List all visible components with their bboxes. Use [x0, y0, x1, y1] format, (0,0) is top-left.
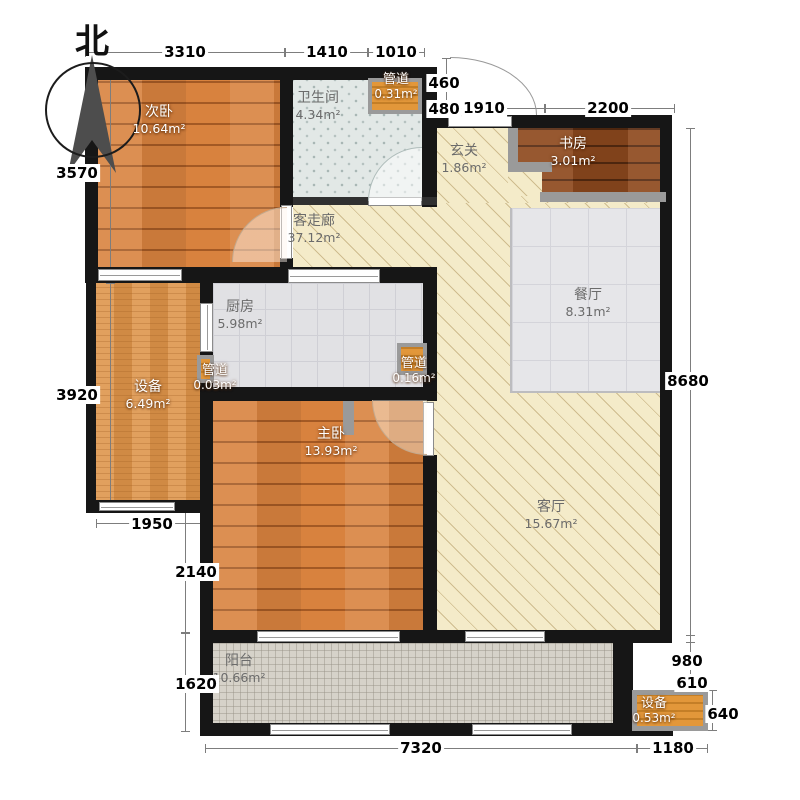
room-label-living: 客厅 15.67m²: [525, 499, 578, 532]
dim-label: 7320: [398, 739, 444, 757]
room-name: 客走廊: [293, 213, 335, 229]
room-label-pipe-top: 管道 0.31m²: [374, 72, 417, 101]
room-area: 1.86m²: [441, 160, 486, 176]
room-name: 设备: [134, 379, 162, 395]
room-area: 0.31m²: [374, 87, 417, 101]
wall-segment: [200, 387, 213, 633]
dim-label: 980: [669, 652, 704, 670]
dim-label: 480: [426, 100, 461, 118]
dim-label: 640: [705, 705, 740, 723]
room-area: 5.98m²: [217, 316, 262, 332]
dim-label: 1410: [304, 43, 350, 61]
room-name: 管道: [202, 363, 228, 378]
study-trim: [540, 192, 666, 202]
dim-label: 2140: [173, 563, 219, 581]
room-label-equipment-br: 设备 0.53m²: [632, 696, 675, 725]
window: [200, 303, 213, 352]
room-name: 次卧: [145, 104, 173, 120]
room-name: 主卧: [317, 426, 345, 442]
room-label-kitchen: 厨房 5.98m²: [217, 299, 262, 332]
dim-label: 2200: [585, 99, 631, 117]
study-trim: [508, 162, 552, 172]
dim-label: 8680: [665, 372, 711, 390]
window: [270, 724, 390, 735]
room-name: 设备: [641, 696, 667, 711]
wall-segment: [200, 283, 213, 303]
room-label-study: 书房 3.01m²: [550, 136, 595, 169]
dim-label: 1910: [461, 99, 507, 117]
room-name: 书房: [559, 136, 587, 152]
dim-label: 3310: [162, 43, 208, 61]
window: [465, 631, 545, 642]
floor-balcony: [212, 643, 613, 723]
north-compass: 北: [30, 6, 150, 166]
window: [99, 502, 175, 511]
room-name: 卫生间: [297, 90, 339, 106]
dim-label: 1950: [129, 515, 175, 533]
room-area: 6.49m²: [125, 396, 170, 412]
floor-entry-notch: [508, 170, 542, 196]
room-label-master-bedroom: 主卧 13.93m²: [305, 426, 358, 459]
floor-plan: 次卧 10.64m² 卫生间 4.34m² 管道 0.31m² 玄关 1.86m…: [0, 0, 800, 800]
room-name: 客厅: [537, 499, 565, 515]
room-label-bathroom: 卫生间 4.34m²: [295, 90, 340, 123]
dim-label: 460: [426, 74, 461, 92]
room-area: 0.03m²: [193, 378, 236, 392]
room-label-corridor: 客走廊 37.12m²: [288, 213, 341, 246]
room-label-entry-hall: 玄关 1.86m²: [441, 143, 486, 176]
compass-circle-icon: [45, 62, 141, 158]
dim-label: 1620: [173, 675, 219, 693]
wall-segment: [280, 67, 293, 207]
room-label-equipment-left: 设备 6.49m²: [125, 379, 170, 412]
dim-line: [110, 283, 111, 508]
room-area: 37.12m²: [288, 230, 341, 246]
room-name: 厨房: [226, 299, 254, 315]
window: [98, 269, 182, 281]
dim-label: 1180: [650, 739, 696, 757]
room-area: 10.64m²: [133, 121, 186, 137]
room-name: 玄关: [450, 143, 478, 159]
room-area: 0.16m²: [392, 371, 435, 385]
room-area: 15.67m²: [525, 516, 578, 532]
room-area: 4.34m²: [295, 107, 340, 123]
wall-segment: [613, 633, 633, 736]
dim-label: 3920: [54, 386, 100, 404]
window: [472, 724, 572, 735]
room-name: 阳台: [225, 653, 253, 669]
dim-label: 3570: [54, 164, 100, 182]
room-label-balcony: 阳台 10.66m²: [213, 653, 266, 686]
room-label-pipe-left: 管道 0.03m²: [193, 363, 236, 392]
room-name: 餐厅: [574, 287, 602, 303]
dim-label: 1010: [373, 43, 419, 61]
room-label-second-bedroom: 次卧 10.64m²: [133, 104, 186, 137]
window: [257, 631, 400, 642]
room-name: 管道: [401, 356, 427, 371]
room-area: 10.66m²: [213, 670, 266, 686]
room-area: 8.31m²: [565, 304, 610, 320]
wall-segment: [423, 455, 437, 633]
room-name: 管道: [383, 72, 409, 87]
room-area: 13.93m²: [305, 443, 358, 459]
room-label-dining: 餐厅 8.31m²: [565, 287, 610, 320]
dim-label: 610: [674, 674, 709, 692]
room-label-pipe-right: 管道 0.16m²: [392, 356, 435, 385]
room-area: 0.53m²: [632, 711, 675, 725]
room-area: 3.01m²: [550, 153, 595, 169]
kitchen-sliding-door: [288, 269, 380, 283]
